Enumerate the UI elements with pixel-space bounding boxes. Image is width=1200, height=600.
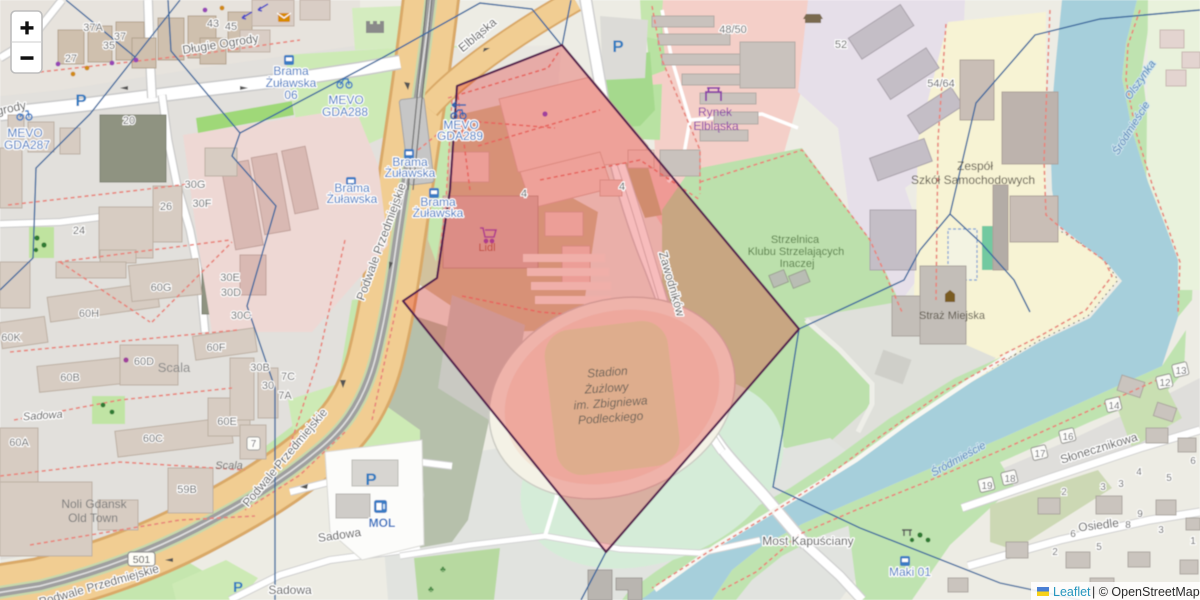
svg-text:5: 5 <box>1096 542 1102 553</box>
svg-text:19: 19 <box>981 481 993 492</box>
svg-text:30: 30 <box>262 380 274 392</box>
svg-text:26: 26 <box>160 201 172 213</box>
svg-text:Most Kapuściany: Most Kapuściany <box>762 534 853 548</box>
svg-text:6: 6 <box>1070 529 1076 540</box>
svg-text:Elbląska: Elbląska <box>693 119 739 133</box>
svg-text:30C: 30C <box>231 310 251 322</box>
svg-text:60F: 60F <box>207 342 226 354</box>
svg-text:P: P <box>75 91 86 110</box>
svg-text:1: 1 <box>1190 536 1196 547</box>
svg-text:Leaflet: Leaflet <box>1053 585 1091 599</box>
svg-text:P: P <box>365 470 376 489</box>
svg-text:4: 4 <box>619 181 625 193</box>
svg-text:59B: 59B <box>177 484 197 496</box>
svg-text:12: 12 <box>1159 378 1171 389</box>
svg-text:60B: 60B <box>60 372 80 384</box>
svg-text:60H: 60H <box>79 308 99 320</box>
svg-text:60G: 60G <box>151 282 172 294</box>
svg-text:7A: 7A <box>278 390 292 402</box>
svg-text:P: P <box>233 579 243 596</box>
svg-text:Straż Miejska: Straż Miejska <box>919 310 986 322</box>
svg-text:30G: 30G <box>185 179 206 191</box>
svg-text:7C: 7C <box>281 371 295 383</box>
svg-text:Sadowa: Sadowa <box>268 583 312 597</box>
svg-text:4: 4 <box>1136 467 1142 478</box>
svg-text:Old Town: Old Town <box>68 511 118 525</box>
svg-text:Żuławska: Żuławska <box>385 166 436 180</box>
svg-text:6: 6 <box>1190 456 1196 467</box>
svg-text:Noli Gdansk: Noli Gdansk <box>61 497 127 511</box>
svg-text:Klubu Strzelających: Klubu Strzelających <box>748 246 845 258</box>
svg-text:18: 18 <box>1004 474 1016 485</box>
svg-text:20: 20 <box>123 115 135 127</box>
svg-text:4: 4 <box>521 188 527 200</box>
svg-text:37A: 37A <box>83 22 103 34</box>
svg-text:P: P <box>612 37 623 56</box>
svg-text:3: 3 <box>1118 479 1124 490</box>
svg-text:3: 3 <box>1100 482 1106 493</box>
svg-text:30B: 30B <box>250 362 270 374</box>
svg-text:Strzelnica: Strzelnica <box>771 234 820 246</box>
svg-text:16: 16 <box>1062 432 1074 443</box>
svg-text:9: 9 <box>1137 509 1143 520</box>
svg-text:2: 2 <box>1052 547 1058 558</box>
svg-text:Lidl: Lidl <box>478 242 495 254</box>
svg-text:24: 24 <box>73 225 85 237</box>
svg-text:60A: 60A <box>9 437 29 449</box>
svg-text:60K: 60K <box>1 332 21 344</box>
svg-text:| © OpenStreetMap: | © OpenStreetMap <box>1092 585 1200 599</box>
svg-text:17: 17 <box>1034 449 1046 460</box>
svg-text:48/50: 48/50 <box>719 24 747 36</box>
svg-text:Szkół Samochodowych: Szkół Samochodowych <box>911 173 1035 187</box>
svg-text:♣: ♣ <box>428 584 434 594</box>
svg-text:8: 8 <box>1125 520 1131 531</box>
svg-text:5: 5 <box>1166 473 1172 484</box>
svg-text:60C: 60C <box>143 433 163 445</box>
svg-text:Rynek: Rynek <box>698 105 733 119</box>
svg-text:45: 45 <box>225 21 237 33</box>
svg-text:3: 3 <box>1158 525 1164 536</box>
svg-text:54/64: 54/64 <box>927 78 955 90</box>
svg-text:Żuławska: Żuławska <box>327 192 378 206</box>
svg-text:GDA287: GDA287 <box>4 138 50 152</box>
svg-text:GDA289: GDA289 <box>437 129 483 143</box>
svg-text:35: 35 <box>103 40 115 52</box>
svg-text:30F: 30F <box>193 198 212 210</box>
svg-text:Zespół: Zespół <box>957 159 993 173</box>
svg-text:♣: ♣ <box>440 564 446 574</box>
svg-text:37: 37 <box>114 31 126 43</box>
svg-text:14: 14 <box>1108 401 1120 412</box>
svg-text:06: 06 <box>284 88 298 102</box>
svg-text:7: 7 <box>251 439 257 450</box>
svg-text:60D: 60D <box>134 356 154 368</box>
svg-text:501: 501 <box>133 554 151 566</box>
svg-text:Żuławska: Żuławska <box>413 206 464 220</box>
svg-text:13: 13 <box>1175 366 1187 377</box>
svg-text:30D: 30D <box>221 287 241 299</box>
svg-text:Scala: Scala <box>215 460 243 472</box>
svg-text:Maki 01: Maki 01 <box>889 565 931 579</box>
svg-text:43: 43 <box>207 18 219 30</box>
svg-text:30E: 30E <box>220 272 240 284</box>
svg-text:Stadion: Stadion <box>587 364 629 381</box>
svg-text:GDA288: GDA288 <box>322 105 368 119</box>
svg-text:2: 2 <box>1061 487 1067 498</box>
svg-text:60E: 60E <box>217 416 237 428</box>
svg-text:27: 27 <box>65 53 77 65</box>
svg-text:52: 52 <box>835 39 847 51</box>
svg-text:Inaczej: Inaczej <box>780 258 815 270</box>
svg-text:MOL: MOL <box>369 516 396 530</box>
svg-text:Scala: Scala <box>158 360 191 375</box>
